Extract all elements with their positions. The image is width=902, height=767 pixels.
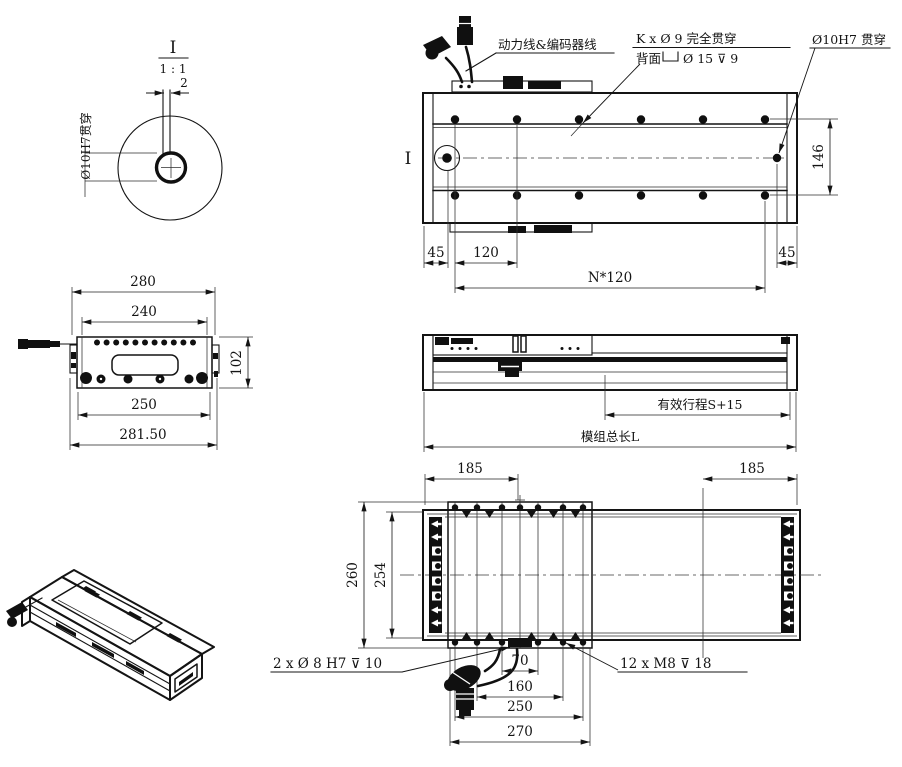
counterbore-prefix-text: 背面 [636,51,661,66]
end-view-top-holes [94,340,196,346]
end-view-dimensions: 280 240 102 250 281.50 [70,274,253,450]
end-plug-icon [18,339,28,349]
dim-185-left: 185 [457,461,483,477]
dim-102: 102 [229,350,245,376]
detail-scale: 1 : 1 [160,62,187,76]
dim-120: 120 [473,245,499,261]
detail-callout-hole [442,153,452,163]
dowel-callout-text: 2 x Ø 8 H7 ⊽ 10 [273,656,382,672]
dim-160: 160 [507,679,533,695]
top-view-dimensions: 45 120 45 N*120 146 [424,119,838,293]
dim-280: 280 [130,274,156,290]
counterbore-symbol-icon [663,52,678,61]
section-label-I: I [405,149,412,169]
top-mount-holes-row-lower [451,191,769,199]
end-view: 280 240 102 250 281.50 [18,274,253,450]
counterbore-suffix-text: Ø 15 ⊽ 9 [683,51,738,66]
dim-146: 146 [811,144,827,170]
top-cable-connectors [423,16,473,82]
carriage-center-block [508,638,532,647]
mount-hole-callout: K x Ø 9 完全贯穿 背面 Ø 15 ⊽ 9 [571,31,790,136]
side-view: 有效行程S+15 模组总长L [423,335,797,452]
end-view-connector [18,339,77,349]
dim-45-right: 45 [778,245,795,261]
side-view-body [423,335,797,390]
end-view-bottom-holes [80,372,208,384]
dim-n120: N*120 [588,270,632,286]
dim-250-end: 250 [131,397,157,413]
bottom-view-right-end-block [781,517,794,633]
bottom-view: 185 185 260 254 70 160 250 270 2 x Ø 8 H… [271,461,822,746]
cable-callout: 动力线&编码器线 [466,37,614,71]
pin-hole-callout-text: Ø10H7 贯穿 [812,32,886,47]
dim-260: 260 [345,562,361,588]
pin-hole-right [773,154,781,162]
dim-240: 240 [131,304,157,320]
top-view-carriage-strip-bottom [450,223,592,233]
mount-hole-callout-line1: K x Ø 9 完全贯穿 [636,31,736,46]
end-view-slot [112,355,178,375]
dim-70: 70 [511,653,528,669]
dim-250-bottom: 250 [507,699,533,715]
detail-view-I: I 1 : 1 2 Ø10H7贯穿 [78,38,222,220]
detail-dim-2: 2 [180,76,188,90]
iso-connector-icon [6,602,28,619]
detail-title: I [170,38,177,58]
side-view-belt-band [433,357,787,362]
detail-hole-label: Ø10H7贯穿 [78,112,93,179]
dim-281-50: 281.50 [119,427,166,443]
cable-callout-text: 动力线&编码器线 [498,37,597,52]
bottom-view-left-end-block [429,517,442,633]
dim-total-length: 模组总长L [581,429,639,444]
square-plug-icon [459,16,471,27]
dim-185-right: 185 [739,461,765,477]
thread-hole-callout: 12 x M8 ⊽ 18 [566,643,747,672]
isometric-view [6,570,214,700]
dim-270: 270 [507,724,533,740]
top-mount-holes-row-upper [451,115,769,123]
thread-callout-text: 12 x M8 ⊽ 18 [620,656,711,672]
iso-carriage-plate [52,581,162,644]
side-view-dimensions: 有效行程S+15 模组总长L [424,375,796,452]
top-view-carriage-strip [452,76,592,92]
top-view: I 动力线&编码器线 K x Ø 9 完全贯穿 背面 Ø 15 ⊽ 9 Ø10H… [405,16,890,293]
bottom-view-dimensions: 185 185 260 254 70 160 250 270 [345,461,797,742]
cad-drawing-canvas: I 1 : 1 2 Ø10H7贯穿 [0,0,902,767]
dim-254: 254 [373,562,389,588]
engineering-drawing-sheet: I 1 : 1 2 Ø10H7贯穿 [0,0,902,767]
dim-stroke: 有效行程S+15 [658,397,743,412]
dim-45-left: 45 [427,245,444,261]
